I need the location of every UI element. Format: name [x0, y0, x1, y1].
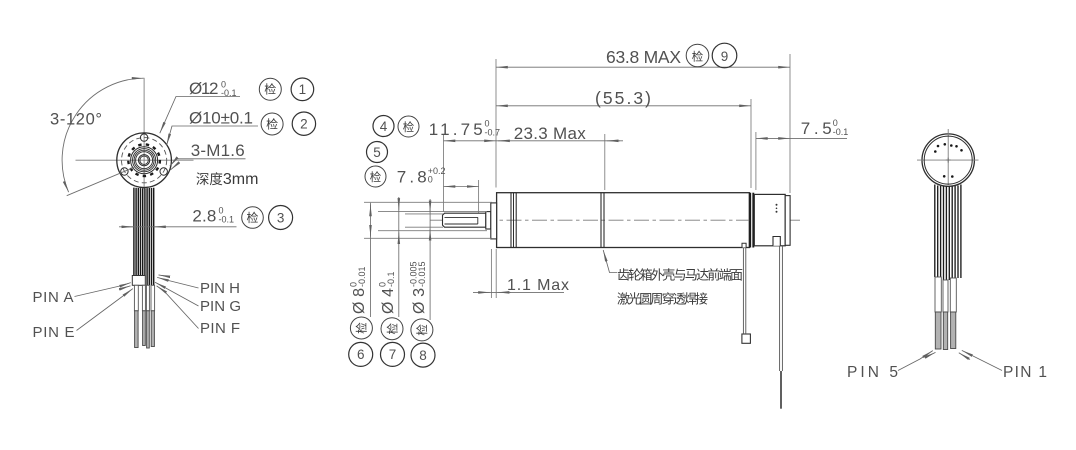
- svg-text:0: 0: [428, 175, 433, 185]
- svg-text:63.8 MAX: 63.8 MAX: [606, 47, 681, 67]
- svg-text:-0.7: -0.7: [485, 127, 501, 137]
- svg-text:23.3 Max: 23.3 Max: [514, 124, 587, 143]
- svg-text:-0.1: -0.1: [221, 88, 237, 98]
- svg-text:齿轮箱外壳与马达前端面: 齿轮箱外壳与马达前端面: [617, 268, 743, 283]
- svg-text:1.1 Max: 1.1 Max: [507, 277, 569, 294]
- svg-text:检: 检: [355, 322, 369, 334]
- svg-text:3: 3: [277, 210, 285, 225]
- svg-text:检: 检: [264, 82, 276, 97]
- svg-text:2: 2: [300, 117, 308, 132]
- svg-text:检: 检: [246, 210, 258, 225]
- svg-text:检: 检: [370, 170, 382, 184]
- svg-text:3-M1.6: 3-M1.6: [191, 141, 245, 160]
- svg-text:检: 检: [415, 324, 429, 336]
- svg-text:-0.1: -0.1: [386, 271, 396, 287]
- svg-text:检: 检: [385, 322, 399, 334]
- svg-text:PIN F: PIN F: [200, 320, 240, 337]
- svg-text:-0.1: -0.1: [833, 127, 849, 137]
- svg-text:4: 4: [380, 119, 388, 134]
- svg-text:3-120°: 3-120°: [50, 111, 102, 129]
- svg-text:9: 9: [721, 49, 729, 64]
- svg-text:PIN E: PIN E: [33, 324, 75, 341]
- svg-text:检: 检: [692, 49, 704, 63]
- svg-text:深度3mm: 深度3mm: [196, 171, 259, 188]
- svg-text:(55.3): (55.3): [595, 88, 651, 108]
- svg-text:Ø10±0.1: Ø10±0.1: [189, 108, 253, 127]
- svg-text:检: 检: [266, 116, 278, 131]
- svg-text:PIN H: PIN H: [200, 280, 240, 297]
- svg-text:6: 6: [357, 347, 365, 362]
- svg-text:7.5: 7.5: [801, 119, 832, 138]
- svg-text:7: 7: [389, 347, 397, 362]
- svg-text:7.8: 7.8: [397, 168, 427, 187]
- svg-text:5: 5: [373, 145, 381, 160]
- svg-text:PIN G: PIN G: [200, 298, 241, 315]
- svg-text:8: 8: [419, 348, 427, 363]
- svg-text:PIN 1: PIN 1: [1003, 364, 1047, 381]
- svg-text:1: 1: [299, 82, 307, 97]
- svg-text:2.8: 2.8: [192, 207, 216, 226]
- svg-text:检: 检: [403, 120, 415, 134]
- svg-text:-0.1: -0.1: [219, 214, 235, 224]
- svg-text:11.75: 11.75: [429, 120, 483, 139]
- svg-text:Ø12: Ø12: [189, 79, 219, 98]
- svg-text:PIN A: PIN A: [33, 289, 74, 306]
- svg-text:-0.01: -0.01: [357, 266, 367, 287]
- svg-text:激光圆周穿透焊接: 激光圆周穿透焊接: [617, 292, 708, 307]
- svg-text:-0.015: -0.015: [417, 261, 427, 287]
- svg-text:PIN 5: PIN 5: [847, 364, 898, 381]
